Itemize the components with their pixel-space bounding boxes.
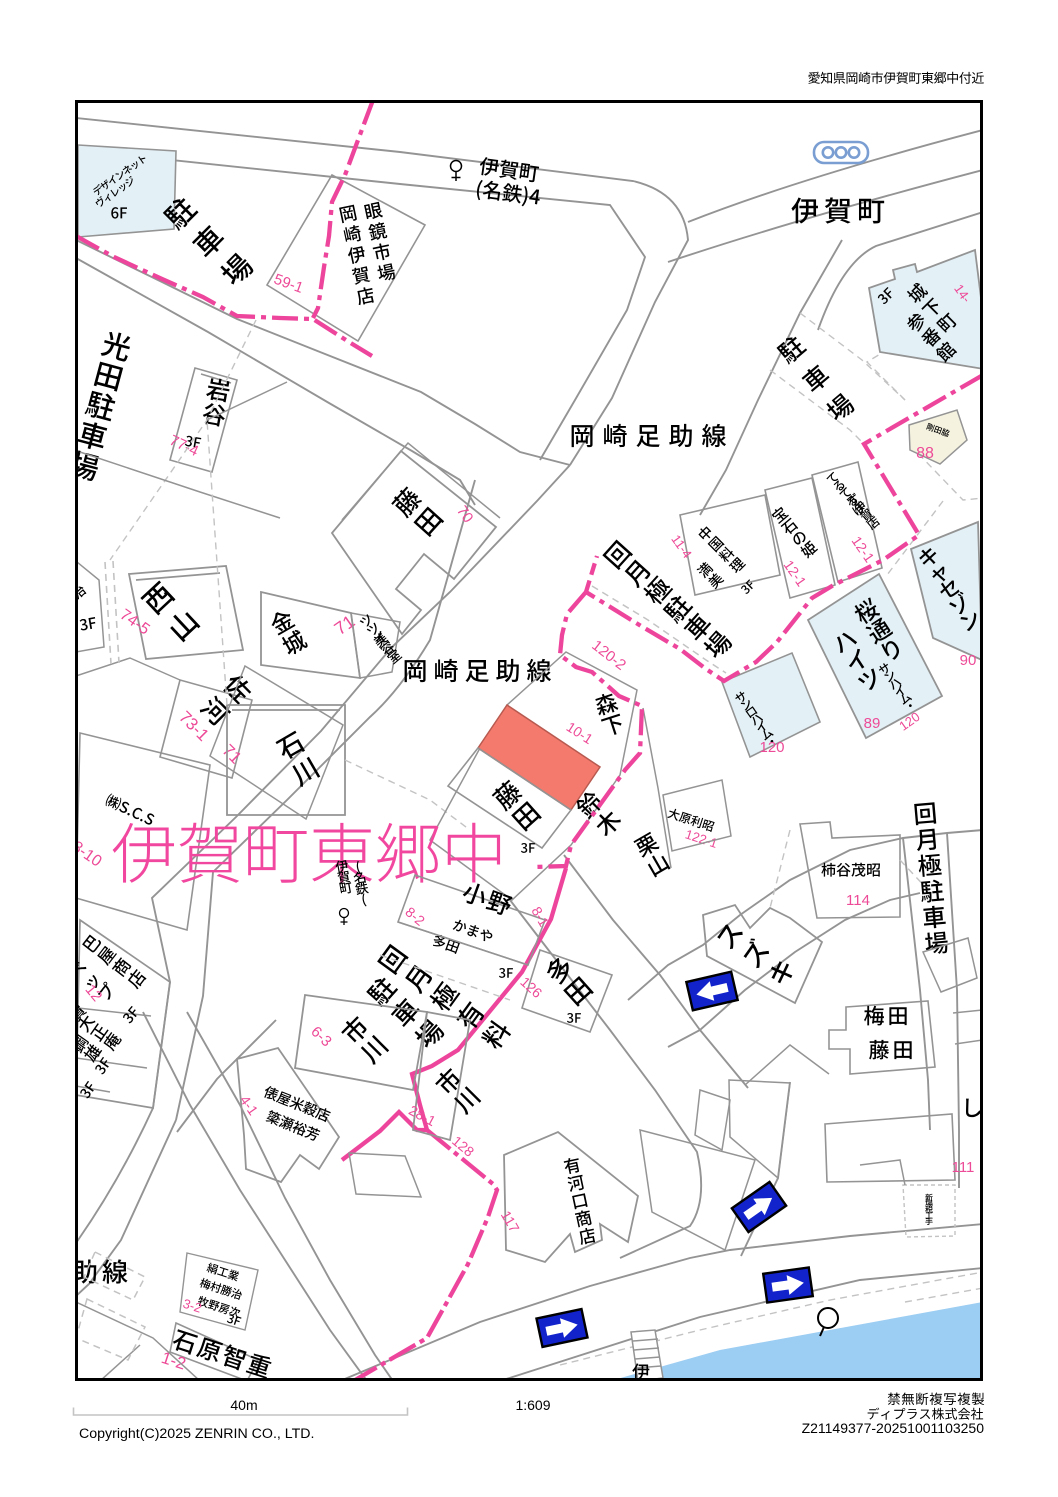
svg-text:90: 90: [960, 652, 977, 669]
svg-text:111: 111: [952, 1159, 975, 1176]
svg-text:114: 114: [846, 892, 870, 909]
svg-text:89: 89: [864, 715, 881, 732]
svg-text:Z21149377-20251001103250: Z21149377-20251001103250: [802, 1420, 985, 1436]
svg-text:Copyright(C)2025 ZENRIN CO., L: Copyright(C)2025 ZENRIN CO., LTD.: [79, 1426, 314, 1442]
svg-text:40m: 40m: [230, 1397, 257, 1413]
svg-text:1:609: 1:609: [515, 1397, 550, 1413]
svg-text:88: 88: [916, 445, 934, 462]
svg-text:120: 120: [759, 739, 784, 756]
